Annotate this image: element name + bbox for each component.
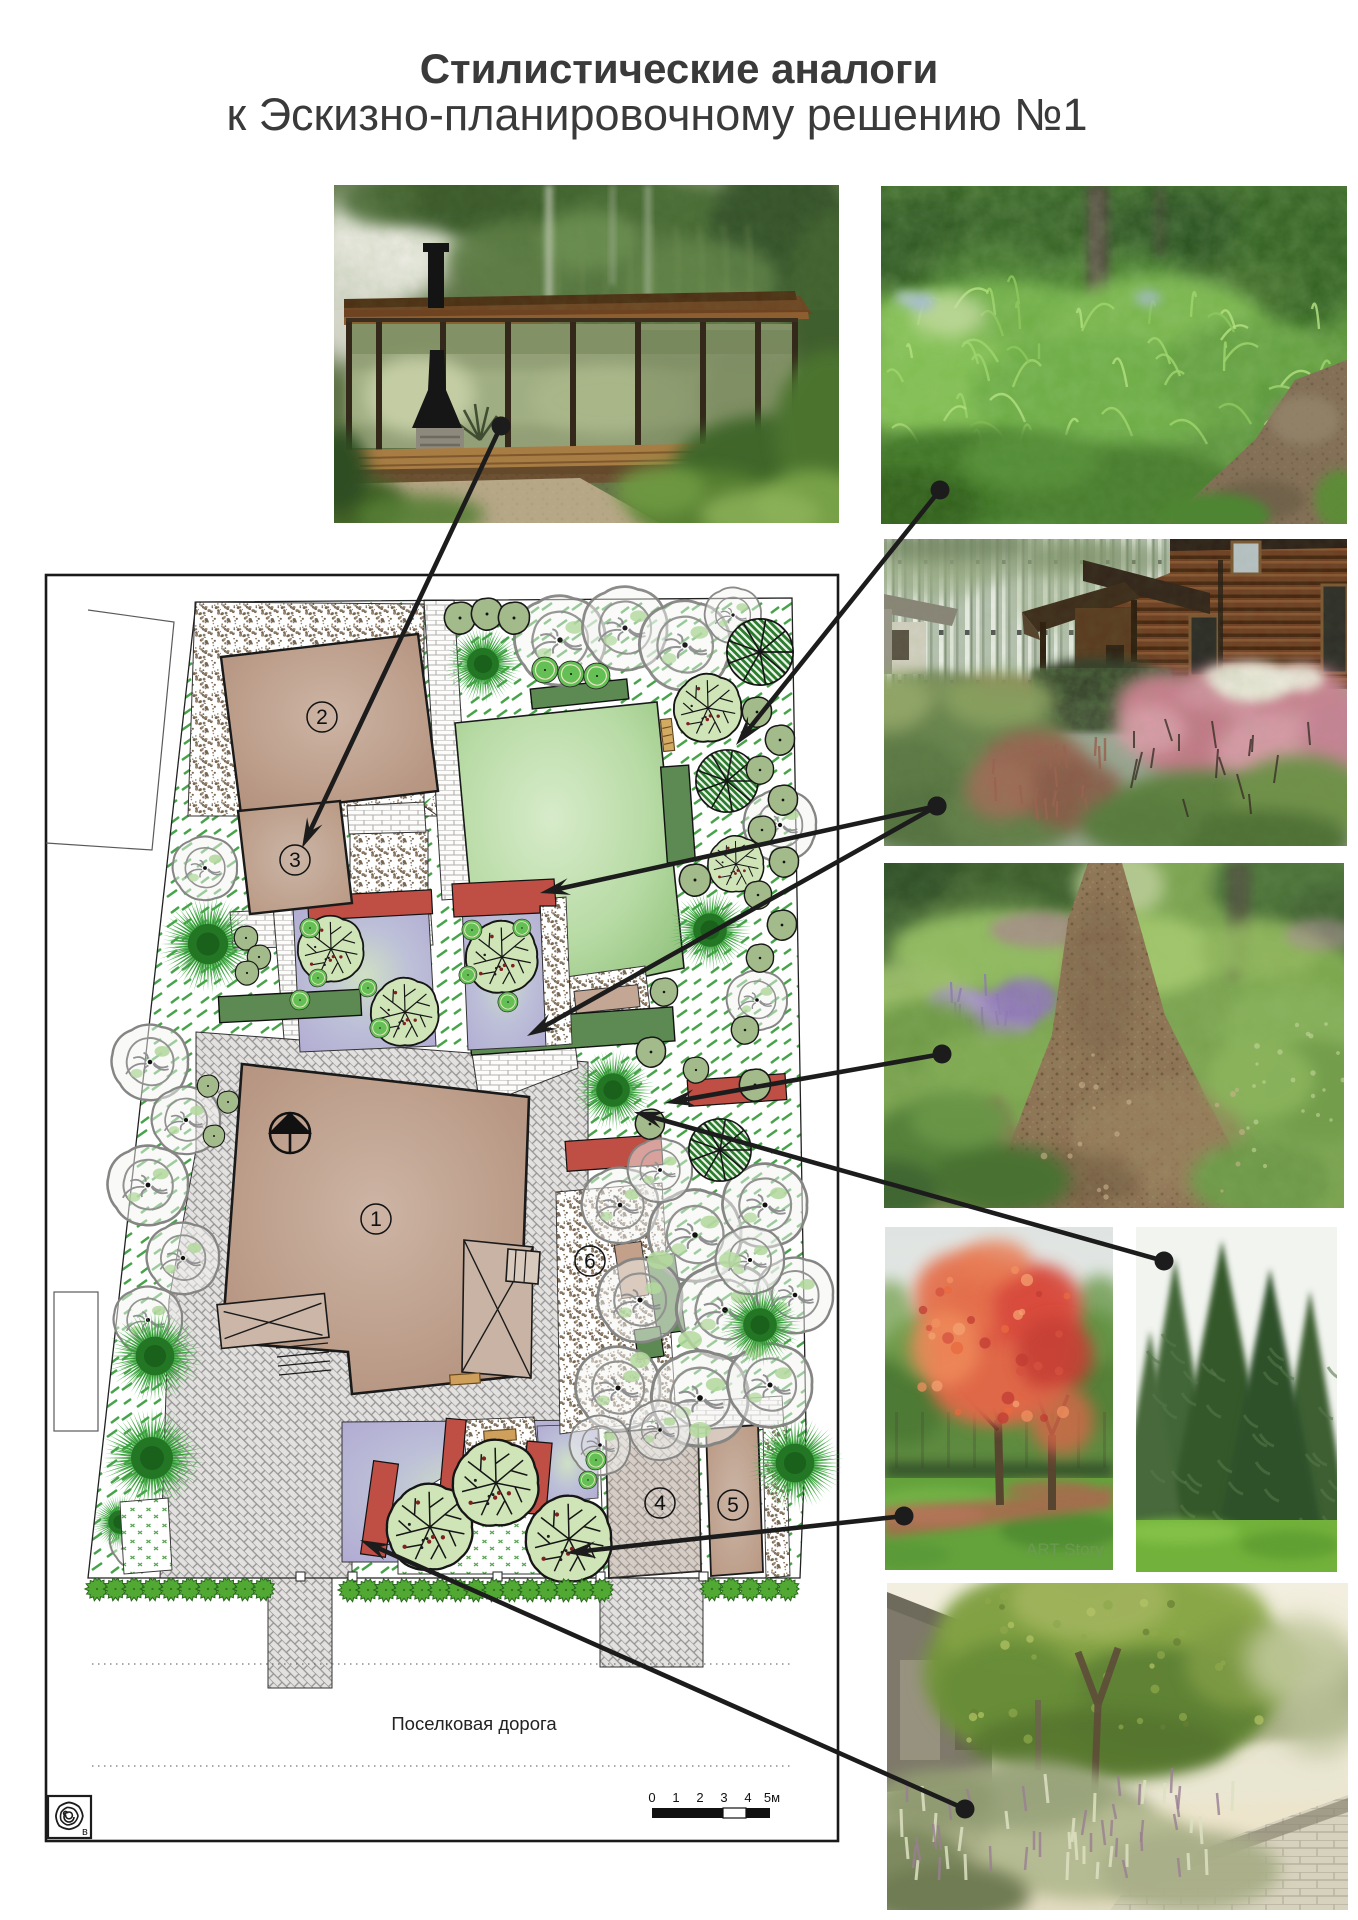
svg-text:ART Story: ART Story — [1026, 1540, 1104, 1559]
svg-text:1: 1 — [370, 1208, 382, 1231]
svg-text:5: 5 — [727, 1494, 739, 1517]
svg-text:4: 4 — [744, 1790, 751, 1805]
svg-text:в: в — [82, 1826, 88, 1838]
svg-text:4: 4 — [654, 1492, 666, 1515]
svg-text:6: 6 — [584, 1250, 596, 1273]
svg-text:к Эскизно-планировочному решен: к Эскизно-планировочному решению №1 — [227, 89, 1088, 140]
svg-text:Стилистические аналоги: Стилистические аналоги — [420, 45, 939, 92]
svg-text:3: 3 — [720, 1790, 727, 1805]
svg-text:2: 2 — [316, 706, 328, 729]
svg-text:Поселковая дорога: Поселковая дорога — [391, 1713, 557, 1734]
svg-text:1: 1 — [672, 1790, 679, 1805]
svg-text:2: 2 — [696, 1790, 703, 1805]
svg-text:0: 0 — [648, 1790, 655, 1805]
svg-text:3: 3 — [289, 849, 301, 872]
svg-text:5м: 5м — [764, 1790, 780, 1805]
